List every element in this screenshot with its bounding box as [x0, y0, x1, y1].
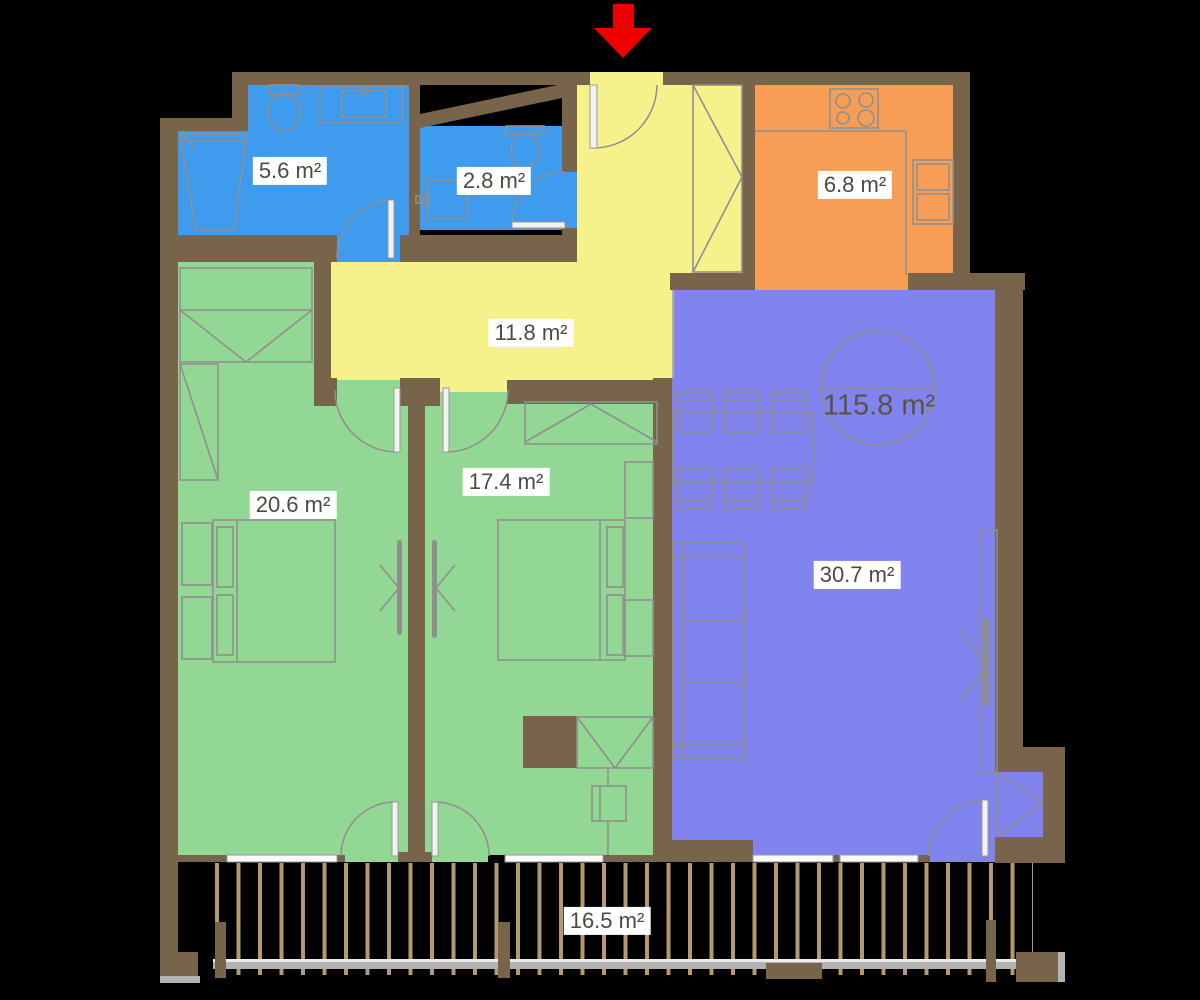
- bedroom1-balcony-door-gap: [345, 855, 398, 862]
- windows-layer: [227, 855, 918, 862]
- label-living-room: 30.7 m²: [814, 561, 901, 589]
- bedroom2-window: [505, 855, 603, 862]
- label-bedroom-2: 17.4 m²: [463, 468, 550, 496]
- bedroom2-door-gap-top: [440, 378, 507, 392]
- bedroom2-balcony-door-gap: [432, 855, 488, 862]
- bedroom1-window: [227, 855, 337, 862]
- label-bathroom-large: 5.6 m²: [253, 157, 327, 185]
- shaft-block: [523, 716, 577, 768]
- living-window-1: [753, 855, 833, 862]
- label-total-area: 115.8 m²: [823, 390, 935, 423]
- label-kitchen: 6.8 m²: [818, 171, 892, 199]
- entrance-arrow-icon: [594, 4, 652, 58]
- label-balcony: 16.5 m²: [564, 907, 651, 935]
- living-window-2: [840, 855, 918, 862]
- label-bedroom-1: 20.6 m²: [250, 491, 337, 519]
- bedroom2-door-gap-bottom: [440, 392, 507, 404]
- bedroom1-door-gap: [337, 380, 400, 406]
- floor-plan: 5.6 m² 2.8 m² 6.8 m² 11.8 m² 115.8 m² 20…: [0, 0, 1200, 1000]
- floor-plan-canvas: [0, 0, 1200, 1000]
- entrance-door-gap: [590, 72, 663, 85]
- label-hallway: 11.8 m²: [489, 319, 574, 347]
- label-bathroom-small: 2.8 m²: [457, 167, 531, 195]
